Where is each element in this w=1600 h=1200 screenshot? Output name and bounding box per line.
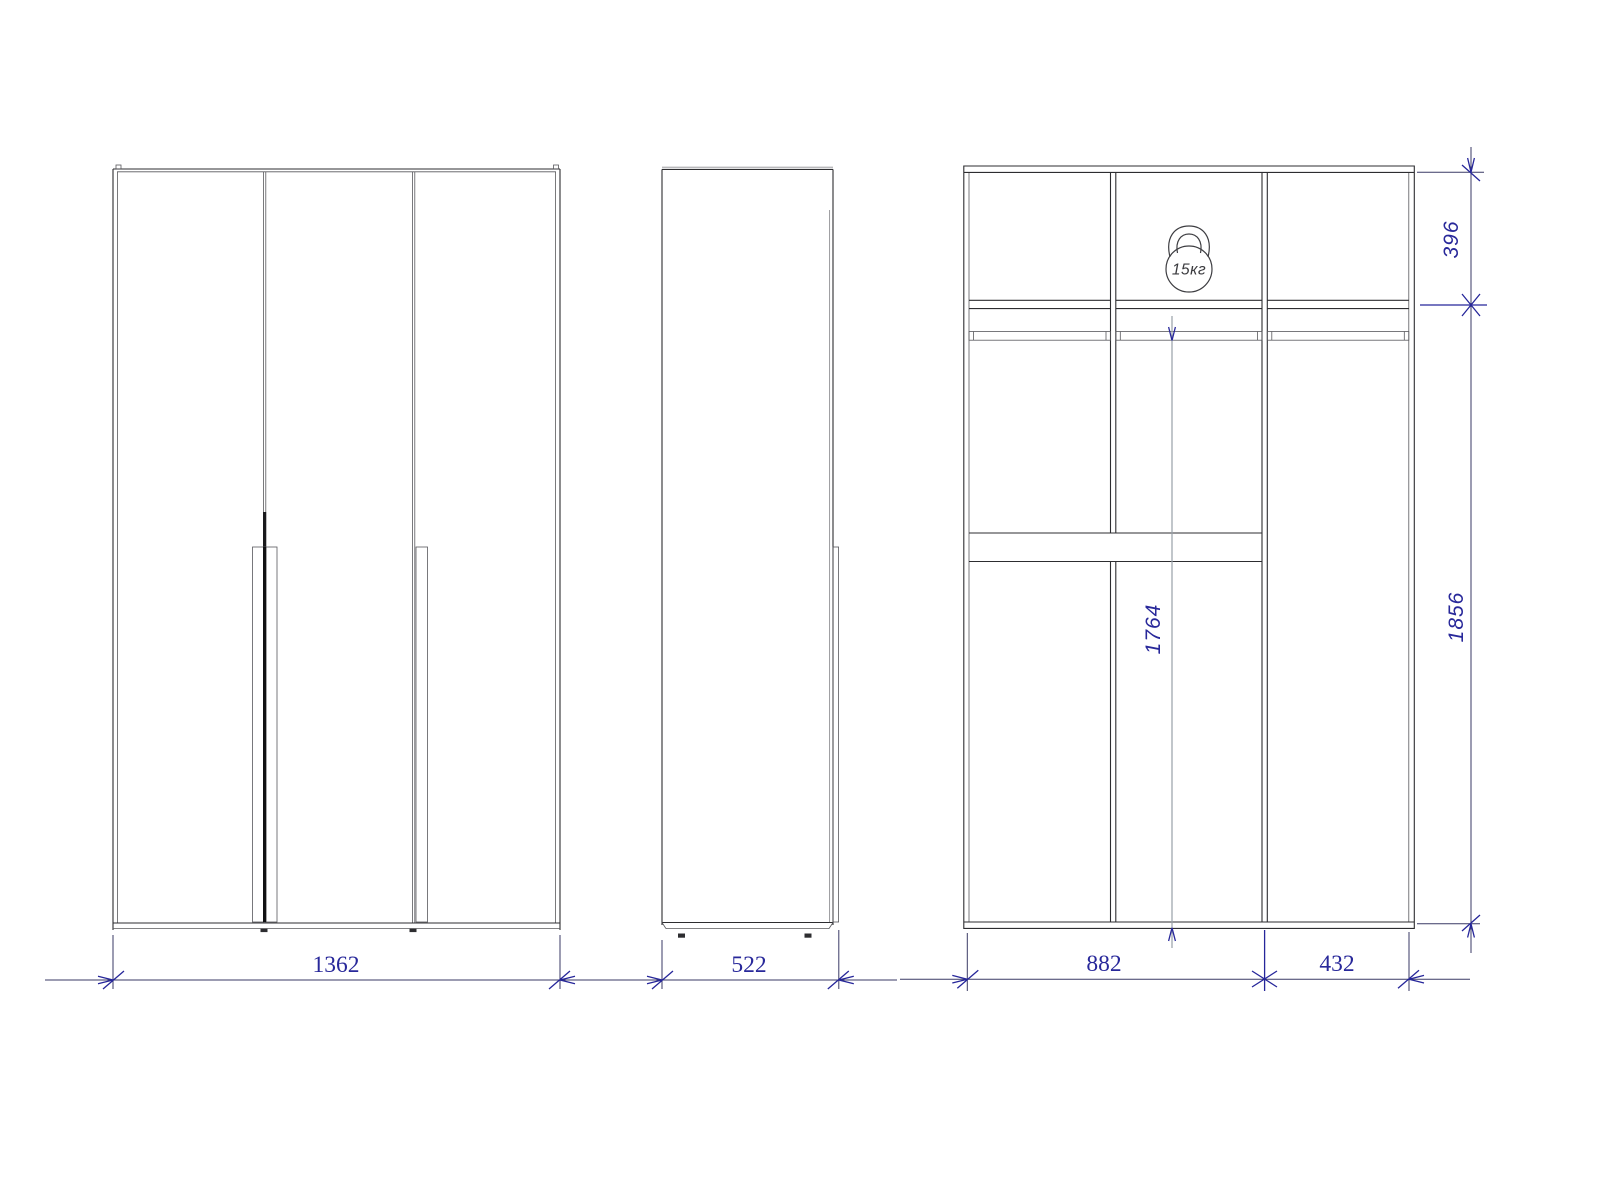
dim-right-column: 396 1856 [1417, 147, 1487, 953]
side-foot-right [805, 934, 812, 938]
front-view [113, 165, 560, 932]
dim-label-side-section-width: 432 [1319, 951, 1354, 977]
wardrobe-technical-drawing: 1362 522 [0, 0, 1600, 1200]
side-foot-left [678, 934, 685, 938]
side-view [662, 167, 839, 938]
interior-top-shelf [969, 300, 1409, 308]
dim-interior-widths: 882 432 [900, 930, 1470, 991]
dim-label-top-shelf-height: 396 [1440, 220, 1463, 258]
dim-label-main-section-width: 882 [1086, 951, 1121, 977]
door-handle-right [416, 547, 428, 922]
kettlebell-handle-outer [1169, 226, 1210, 257]
dim-interior-height: 1764 [1142, 316, 1175, 948]
max-load-icon: 15кг [1166, 226, 1212, 292]
interior-divider-2 [1262, 172, 1267, 922]
drawing-sheet: 1362 522 [0, 0, 1600, 1200]
interior-divider-1 [1111, 172, 1116, 922]
dim-side-depth: 522 [600, 930, 897, 989]
dim-label-side-depth: 522 [731, 952, 766, 978]
interior-view: 15кг [964, 166, 1415, 930]
dim-label-overall-height: 1856 [1445, 592, 1468, 643]
dim-label-front-width: 1362 [313, 952, 360, 978]
front-foot-right [410, 929, 417, 933]
dim-label-interior-height: 1764 [1142, 604, 1165, 655]
side-handle [833, 547, 839, 922]
load-badge-label: 15кг [1172, 262, 1206, 279]
dim-front-width: 1362 [45, 935, 627, 989]
front-foot-left [261, 929, 268, 933]
kettlebell-handle-inner [1177, 234, 1201, 253]
interior-mid-shelf [969, 533, 1262, 562]
door-gap-right [413, 172, 415, 923]
hanging-rod [969, 332, 1409, 341]
